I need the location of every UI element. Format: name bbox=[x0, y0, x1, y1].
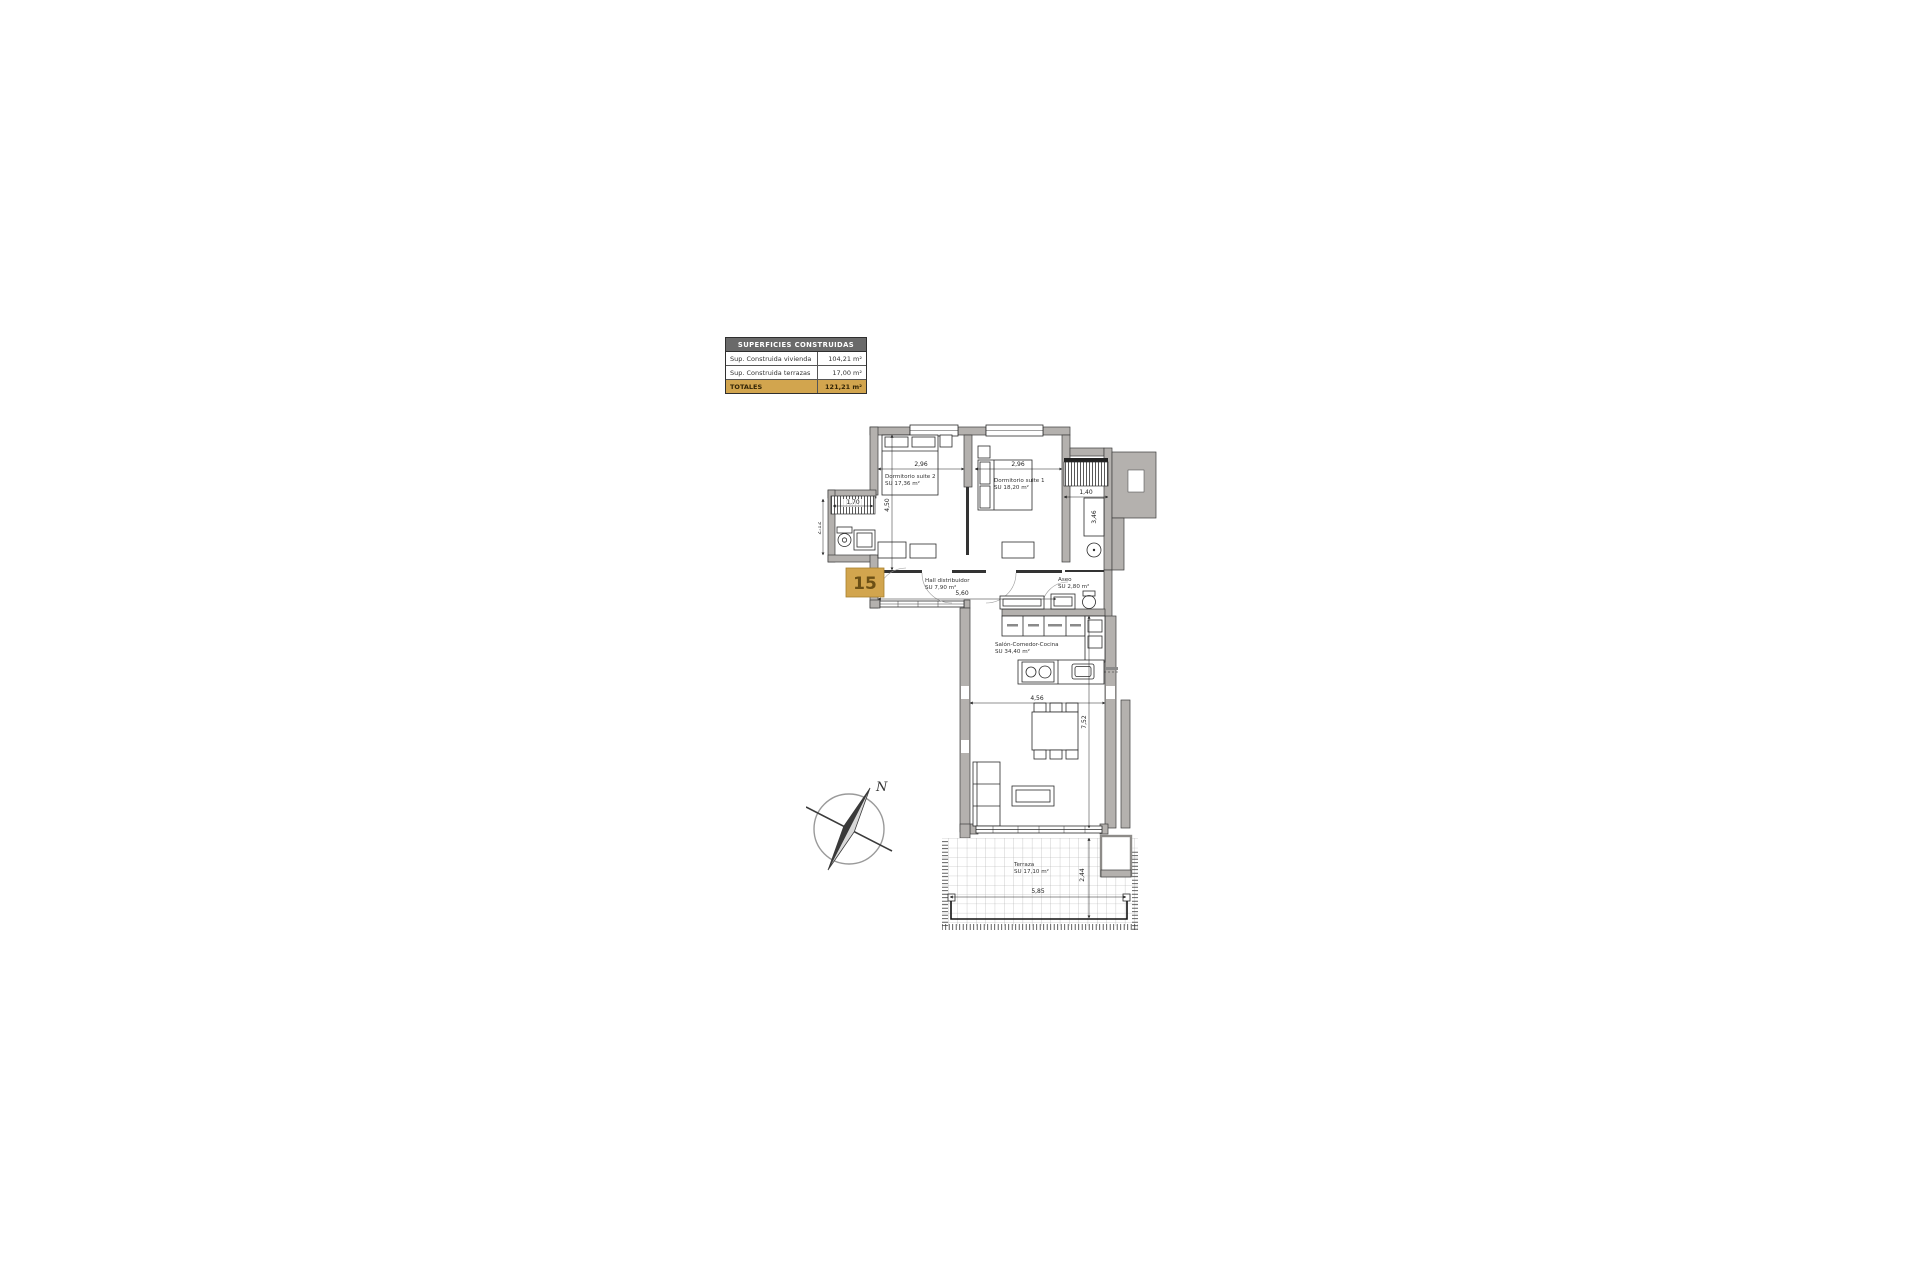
dim-suite1-width: 2,96 bbox=[1011, 461, 1025, 468]
table-total-row: TOTALES 121,21 m² bbox=[726, 380, 866, 393]
terrace-railing-bottom bbox=[942, 924, 1138, 930]
terrace-railing-left bbox=[942, 840, 948, 926]
compass-north-label: N bbox=[875, 780, 888, 795]
dim-wardrobe-depth: 3,46 bbox=[1091, 510, 1098, 524]
dim-bath-window: 1,70 bbox=[846, 499, 860, 506]
utility-fixtures bbox=[1084, 498, 1104, 557]
dim-hall-width: 5,60 bbox=[955, 590, 969, 597]
row-label: Sup. Construida terrazas bbox=[726, 366, 817, 379]
room-label-salon-name: Salón-Comedor-Cocina bbox=[995, 641, 1059, 648]
total-value: 121,21 m² bbox=[817, 380, 866, 393]
room-label-aseo-area: SU 2,80 m² bbox=[1058, 583, 1089, 590]
dim-terrace-width: 5,85 bbox=[1031, 888, 1045, 895]
row-value: 104,21 m² bbox=[817, 352, 866, 365]
surfaces-table-header: SUPERFICIES CONSTRUIDAS bbox=[726, 338, 866, 352]
room-label-terraza-name: Terraza bbox=[1013, 862, 1034, 868]
dim-suite2-width: 2,96 bbox=[914, 461, 928, 468]
room-label-aseo-name: Aseo bbox=[1058, 577, 1072, 583]
room-label-terraza-area: SU 17,10 m² bbox=[1014, 868, 1049, 875]
row-value: 17,00 m² bbox=[817, 366, 866, 379]
suite1-bed bbox=[978, 446, 1034, 558]
dim-suite2-depth: 4,50 bbox=[884, 498, 891, 512]
coffee-table bbox=[1012, 786, 1054, 806]
surfaces-table: SUPERFICIES CONSTRUIDAS Sup. Construida … bbox=[725, 337, 867, 394]
compass-needle-light bbox=[828, 788, 870, 870]
room-label-hall-area: SU 7,90 m² bbox=[925, 584, 956, 591]
compass-rose: N bbox=[806, 778, 906, 883]
table-row: Sup. Construida vivienda 104,21 m² bbox=[726, 352, 866, 366]
aseo-fixtures bbox=[1051, 591, 1096, 609]
room-label-hall-name: Hall distribuidor bbox=[925, 578, 970, 584]
terrace-railing-right bbox=[1132, 850, 1138, 930]
sofa bbox=[973, 762, 1000, 826]
row-label: Sup. Construida vivienda bbox=[726, 352, 817, 365]
sliding-door bbox=[976, 826, 1102, 833]
room-label-suite2-name: Dormitorio suite 2 bbox=[885, 474, 936, 480]
dim-gallery-width: 1,40 bbox=[1079, 489, 1093, 496]
unit-number: 15 bbox=[853, 574, 877, 594]
room-label-salon-area: SU 34,40 m² bbox=[995, 648, 1030, 655]
table-row: Sup. Construida terrazas 17,00 m² bbox=[726, 366, 866, 380]
bathroom-fixtures bbox=[837, 527, 875, 550]
room-label-suite1-name: Dormitorio suite 1 bbox=[994, 478, 1045, 484]
dim-salon-depth: 7,52 bbox=[1081, 715, 1088, 729]
dim-bath-depth: 2,12 bbox=[818, 521, 823, 535]
page: SUPERFICIES CONSTRUIDAS Sup. Construida … bbox=[0, 0, 1920, 1280]
unit-number-badge: 15 bbox=[846, 568, 884, 597]
room-label-suite2-area: SU 17,36 m² bbox=[885, 480, 920, 487]
dim-terrace-depth: 2,44 bbox=[1079, 868, 1086, 882]
dim-salon-width: 4,56 bbox=[1030, 695, 1044, 702]
dining-set bbox=[1032, 703, 1078, 759]
terrace bbox=[942, 836, 1138, 930]
suite2-bed bbox=[878, 435, 952, 558]
room-label-suite1-area: SU 18,20 m² bbox=[994, 484, 1029, 491]
total-label: TOTALES bbox=[726, 380, 817, 393]
